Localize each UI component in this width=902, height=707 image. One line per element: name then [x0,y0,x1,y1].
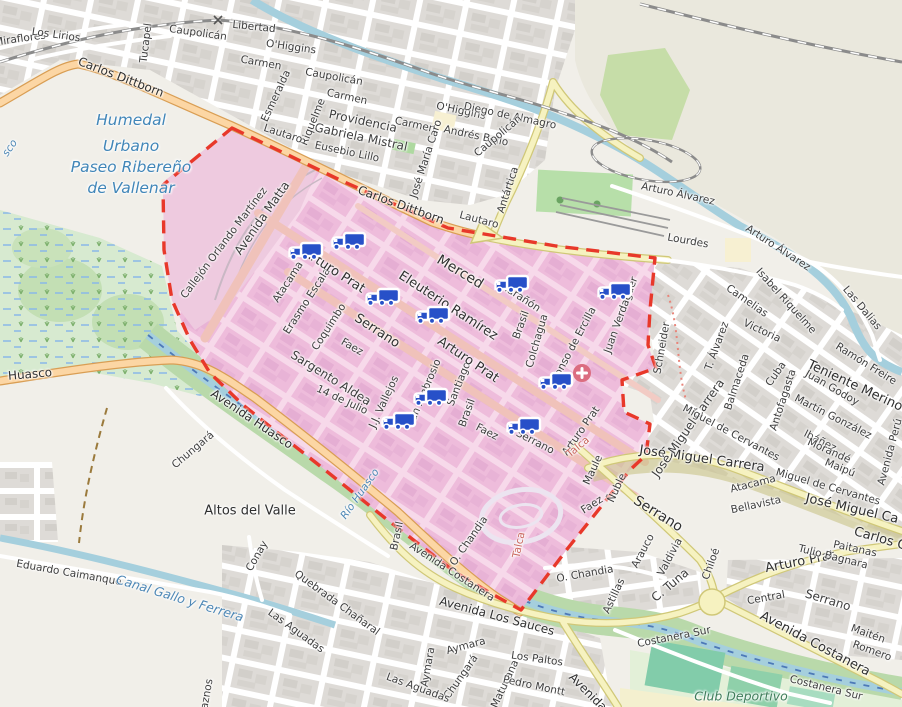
truck-marker[interactable] [383,413,416,430]
map-markers [0,0,902,707]
map-canvas[interactable]: MirafloresLos LiriosCarlos DittbornTucap… [0,0,902,707]
truck-marker[interactable] [496,276,529,293]
hospital-icon[interactable] [573,364,591,382]
truck-marker[interactable] [599,283,632,300]
truck-marker[interactable] [540,373,573,390]
truck-marker[interactable] [367,289,400,306]
truck-marker[interactable] [415,389,448,406]
truck-marker[interactable] [417,307,450,324]
truck-marker[interactable] [508,418,541,435]
truck-marker[interactable] [333,233,366,250]
truck-marker[interactable] [290,243,323,260]
